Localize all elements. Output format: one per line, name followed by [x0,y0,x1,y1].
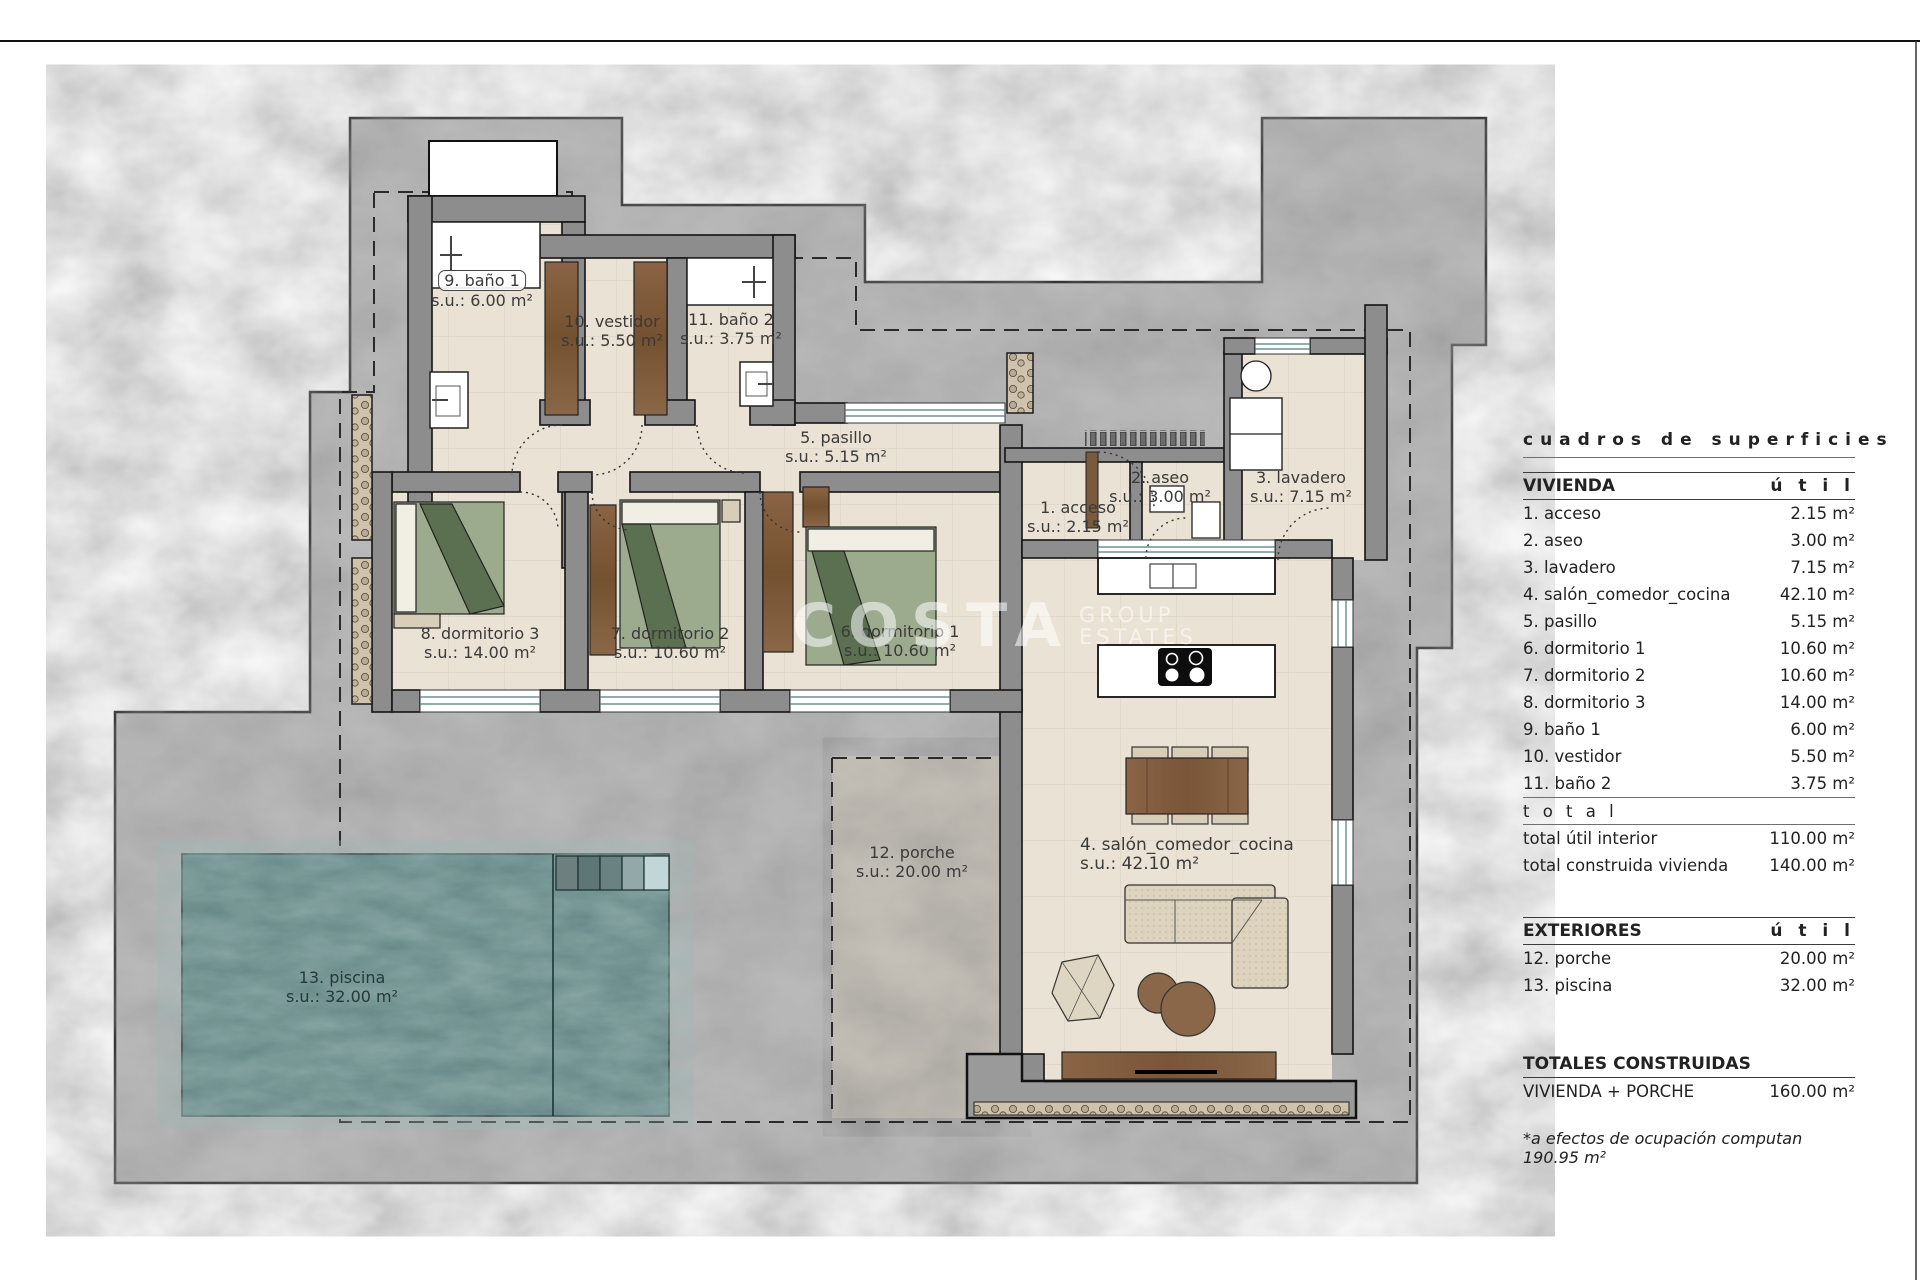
table-row: 7. dormitorio 210.60 m² [1523,662,1855,689]
label-banio2: 11. baño 2 s.u.: 3.75 m² [680,310,782,348]
label-dorm2: 7. dormitorio 2 s.u.: 10.60 m² [611,624,730,662]
pool [182,854,669,1116]
occupancy-footnote: *a efectos de ocupación computan 190.95 … [1523,1129,1855,1167]
label-aseo: 2. aseo s.u.: 3.00 m² [1109,468,1211,506]
label-piscina: 13. piscina s.u.: 32.00 m² [286,968,398,1006]
label-vestidor: 10. vestidor s.u.: 5.50 m² [561,312,663,350]
table-row: 10. vestidor5.50 m² [1523,743,1855,770]
exteriores-header-row: EXTERIORES ú t i l [1523,918,1855,944]
vivienda-header-row: VIVIENDA ú t i l [1523,473,1855,499]
table-row: 13. piscina32.00 m² [1523,972,1855,999]
entry-mat-comb [1085,430,1205,446]
bed-dorm3 [394,502,504,628]
table-row: 11. baño 23.75 m² [1523,770,1855,797]
label-pasillo: 5. pasillo s.u.: 5.15 m² [785,428,887,466]
table-row: 8. dormitorio 314.00 m² [1523,689,1855,716]
table-row: 3. lavadero7.15 m² [1523,554,1855,581]
table-row-total-util: total útil interior110.00 m² [1523,825,1855,852]
kitchen-counter [1098,558,1275,594]
totales-header: TOTALES CONSTRUIDAS [1523,1054,1751,1074]
table-row: 1. acceso2.15 m² [1523,500,1855,527]
total-caption: t o t a l [1523,798,1855,824]
kitchen-island [1098,645,1275,697]
vivienda-unit-header: ú t i l [1770,476,1855,496]
label-porche: 12. porche s.u.: 20.00 m² [856,843,968,881]
table-row: 9. baño 16.00 m² [1523,716,1855,743]
table-row: 6. dormitorio 110.60 m² [1523,635,1855,662]
table-row: 2. aseo3.00 m² [1523,527,1855,554]
exteriores-unit-header: ú t i l [1770,921,1855,941]
totales-header-row: TOTALES CONSTRUIDAS [1523,1051,1855,1077]
table-row: 5. pasillo5.15 m² [1523,608,1855,635]
label-salon: 4. salón_comedor_cocina s.u.: 42.10 m² [1080,836,1294,874]
surfaces-table-panel: cuadros de superficies VIVIENDA ú t i l … [1523,430,1855,1167]
table-row-total-construida: total construida vivienda140.00 m² [1523,852,1855,879]
terrace [429,141,557,196]
table-row: 4. salón_comedor_cocina42.10 m² [1523,581,1855,608]
exteriores-header: EXTERIORES [1523,921,1642,941]
table-title: cuadros de superficies [1523,430,1855,450]
label-dorm1: 6. dormitorio 1 s.u.: 10.60 m² [841,622,960,660]
vivienda-header: VIVIENDA [1523,476,1615,496]
dining-set [1126,747,1248,824]
table-row: 12. porche20.00 m² [1523,945,1855,972]
vivienda-rows: 1. acceso2.15 m² 2. aseo3.00 m² 3. lavad… [1523,500,1855,797]
floorplan-sheet: COSTA GROUP ESTATES 9. baño 1 s.u.: 6.00… [0,0,1920,1280]
label-lavadero: 3. lavadero s.u.: 7.15 m² [1250,468,1352,506]
table-row-vivienda-porche: VIVIENDA + PORCHE160.00 m² [1523,1078,1855,1105]
label-dorm3: 8. dormitorio 3 s.u.: 14.00 m² [421,624,540,662]
tv-bench [1062,1052,1276,1079]
label-banio1: 9. baño 1 s.u.: 6.00 m² [431,270,533,310]
